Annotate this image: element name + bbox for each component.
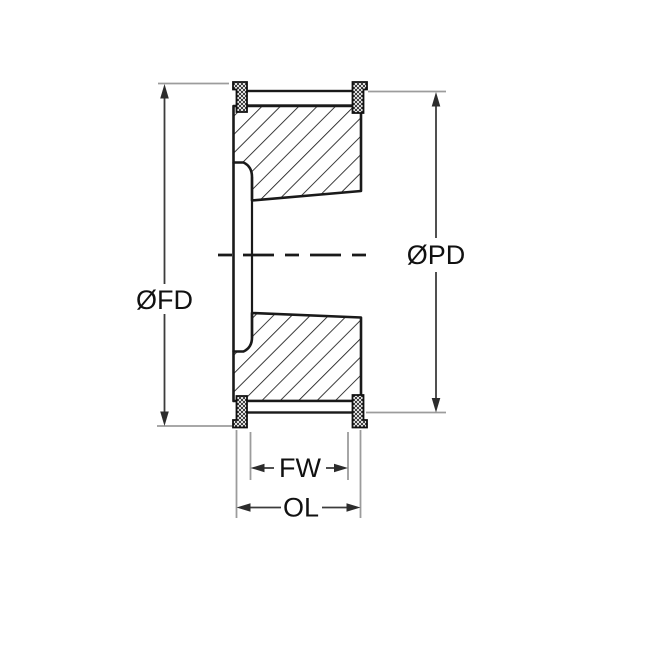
pulley-drawing: ØFD ØPD FW OL — [0, 0, 670, 670]
top-rim-band — [246, 91, 354, 106]
label-fw: FW — [279, 453, 321, 483]
label-ol: OL — [283, 493, 319, 523]
label-pd: ØPD — [407, 240, 466, 270]
drawing-canvas: ØFD ØPD FW OL — [0, 0, 670, 670]
label-fd: ØFD — [136, 285, 193, 315]
bottom-rim-band — [246, 401, 354, 413]
